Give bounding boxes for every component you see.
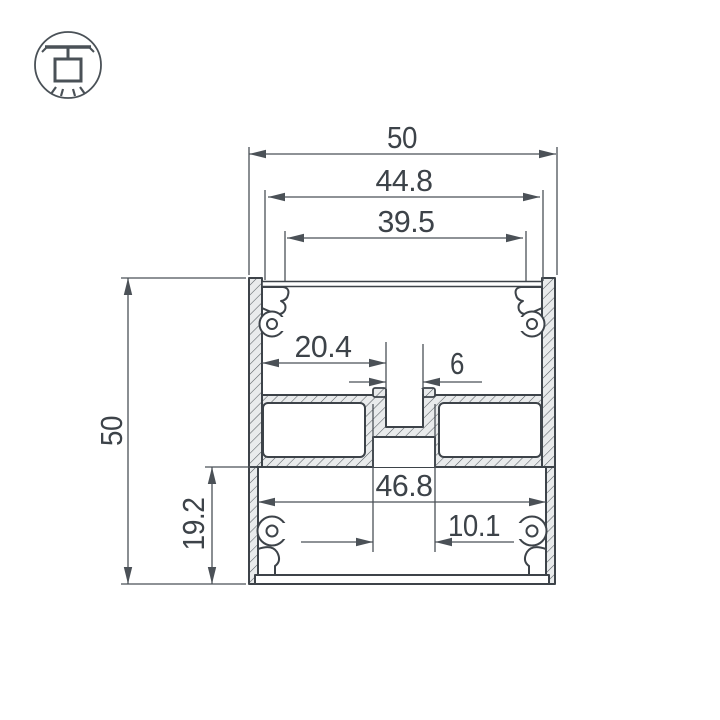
dimension-center-slot-width: 6 <box>349 344 482 394</box>
bottom-left-corner-detail <box>258 517 292 576</box>
dim-label-bottom-cavity-width: 46.8 <box>376 468 433 503</box>
dimension-lower-section-height: 19.2 <box>176 467 256 584</box>
left-wall-lower <box>249 467 258 584</box>
cover-hook <box>516 287 542 314</box>
center-slot-bottom <box>373 437 435 467</box>
arrowhead <box>262 359 279 367</box>
arrowhead <box>208 467 216 484</box>
foot-hook <box>258 547 279 575</box>
center-slot-top <box>386 389 423 427</box>
arrowhead <box>287 234 304 242</box>
top-left-corner-detail <box>260 287 290 337</box>
cover-hook <box>262 287 288 314</box>
arrowhead <box>369 378 386 386</box>
right-hollow-chamber <box>439 403 541 457</box>
dim-label-overall-height: 50 <box>94 416 129 446</box>
bottom-right-corner-detail <box>513 517 547 576</box>
technical-drawing-page: 50 44.8 39.5 20.4 <box>0 0 720 720</box>
right-wall-lower <box>546 467 555 584</box>
logo-circle <box>35 32 101 98</box>
left-wall-upper <box>249 278 262 467</box>
right-wall-upper <box>542 278 555 467</box>
arrowhead <box>356 538 373 546</box>
arrowhead <box>539 150 556 158</box>
arrowhead <box>523 193 540 201</box>
dim-label-cover-ledge-width: 44.8 <box>376 163 433 198</box>
left-hollow-chamber <box>263 403 365 457</box>
screw-hole <box>527 319 537 329</box>
screw-hole <box>267 319 277 329</box>
screw-hole <box>267 526 278 537</box>
cover-ledge <box>262 282 542 287</box>
arrowhead <box>208 567 216 584</box>
brand-logo <box>35 32 101 98</box>
arrowhead <box>124 278 132 295</box>
pendant-lamp-icon <box>42 47 94 96</box>
arrowhead <box>529 498 546 506</box>
dim-label-bottom-slot-width: 10.1 <box>448 508 500 543</box>
profile-cross-section <box>249 278 555 584</box>
arrowhead <box>249 150 266 158</box>
dimension-side-pocket-width: 20.4 <box>262 329 386 394</box>
dim-label-overall-width: 50 <box>387 120 417 155</box>
arrowhead <box>258 498 275 506</box>
dim-label-top-opening-width: 39.5 <box>378 204 435 239</box>
dimension-top-opening-width: 39.5 <box>285 204 526 281</box>
arrowhead <box>268 193 285 201</box>
profile-drawing-canvas: 50 44.8 39.5 20.4 <box>0 0 720 720</box>
screw-hole <box>527 526 538 537</box>
arrowhead <box>369 359 386 367</box>
dimensions: 50 44.8 39.5 20.4 <box>94 120 557 584</box>
dimension-overall-height: 50 <box>94 278 246 584</box>
center-slot-lip-left <box>373 388 386 397</box>
dim-label-side-pocket-width: 20.4 <box>295 329 352 364</box>
bottom-plate <box>255 575 549 584</box>
arrowhead <box>124 567 132 584</box>
foot-hook <box>525 547 546 575</box>
arrowhead <box>506 234 523 242</box>
arrowhead <box>423 378 440 386</box>
dimension-bottom-cavity-width: 46.8 <box>258 468 546 506</box>
dim-label-lower-section-height: 19.2 <box>176 498 211 551</box>
dim-label-center-slot-width: 6 <box>450 346 464 381</box>
top-right-corner-detail <box>515 287 545 337</box>
